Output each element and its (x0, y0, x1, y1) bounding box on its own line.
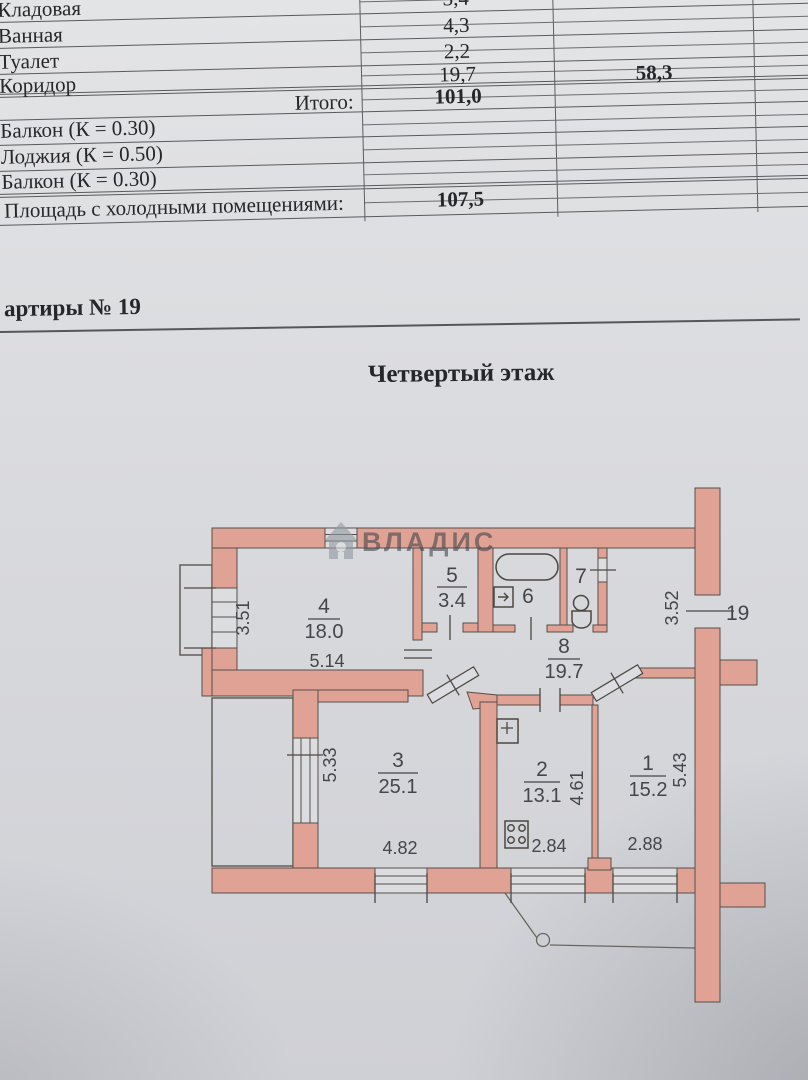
room-1-area: 15.2 (629, 779, 668, 801)
table-line (363, 138, 808, 150)
table-column-line (752, 0, 759, 212)
dim-balcony4-height: 3.51 (233, 600, 253, 635)
row-label: Туалет (0, 48, 59, 74)
dim-room2-right: 4.61 (567, 770, 587, 805)
cold-row-label: Балкон (К = 0.30) (0, 115, 156, 144)
window-room3-loggia (293, 738, 318, 823)
room-6-number: 6 (522, 585, 534, 608)
apartment-underline (0, 318, 800, 333)
dim-entry-height: 3.52 (662, 590, 682, 625)
room-8-area: 19.7 (545, 661, 584, 683)
dim-room1-bottom: 2.88 (627, 834, 662, 854)
area-table: Кладовая Ванная Туалет Коридор 3,4 4,3 2… (0, 0, 808, 240)
walls (202, 488, 765, 1002)
room-1-number: 1 (642, 752, 654, 775)
room-3-area: 25.1 (379, 776, 418, 798)
dim-room3-bottom: 4.82 (382, 838, 417, 858)
room-5-area: 3.4 (438, 590, 466, 612)
stove-icon (505, 821, 528, 848)
dim-room4-width: 5.14 (309, 651, 344, 671)
door-room1 (588, 659, 647, 707)
balcony-outline-bottom (505, 893, 695, 948)
table-line (363, 163, 808, 175)
total-value: 101,0 (361, 82, 555, 112)
window-room2-bottom (511, 868, 585, 893)
cold-row-label: Балкон (К = 0.30) (1, 166, 157, 195)
row-label: Коридор (0, 72, 76, 99)
window-room1-bottom (613, 868, 677, 893)
entrance-apartment-number: 19 (726, 602, 749, 625)
row-label: Кладовая (0, 0, 81, 23)
room-5-number: 5 (446, 564, 458, 587)
dim-room2-bottom: 2.84 (531, 836, 566, 856)
total-label: Итого: (153, 90, 354, 120)
room-2-number: 2 (536, 758, 548, 781)
room-2-area: 13.1 (523, 785, 562, 807)
cold-total-value: 107,5 (364, 185, 558, 215)
balcony-outline-top-left (180, 565, 212, 655)
dim-room3-left: 5.33 (320, 747, 340, 782)
room-8-number: 8 (558, 635, 570, 658)
row-value: 4,3 (360, 11, 554, 41)
bath-sink-icon (494, 587, 513, 607)
bathtub-icon (496, 554, 558, 580)
watermark-text: ВЛАДИС (362, 527, 496, 557)
cold-row-label: Лоджия (К = 0.50) (1, 141, 164, 170)
dim-room1-right: 5.43 (670, 752, 690, 787)
secondary-total-value: 58,3 (554, 58, 755, 88)
table-line (362, 113, 808, 125)
row-label: Ванная (0, 22, 63, 49)
loggia-outline-left (212, 698, 293, 866)
room-3-number: 3 (392, 749, 404, 772)
room-4-area: 18.0 (305, 621, 344, 643)
floor-plan: ВЛАДИС 4 18.0 5 3.4 6 7 8 19.7 3 25.1 2 … (170, 470, 790, 1035)
room-4-number: 4 (318, 595, 330, 618)
room-7-number: 7 (575, 565, 587, 588)
kitchen-sink-icon (497, 719, 518, 743)
apartment-number-line: артиры № 19 (4, 294, 141, 322)
document-photo: Кладовая Ванная Туалет Коридор 3,4 4,3 2… (0, 0, 808, 1080)
floor-title: Четвертый этаж (368, 359, 555, 389)
window-room3-bottom (375, 868, 427, 893)
toilet-icon (572, 596, 591, 629)
